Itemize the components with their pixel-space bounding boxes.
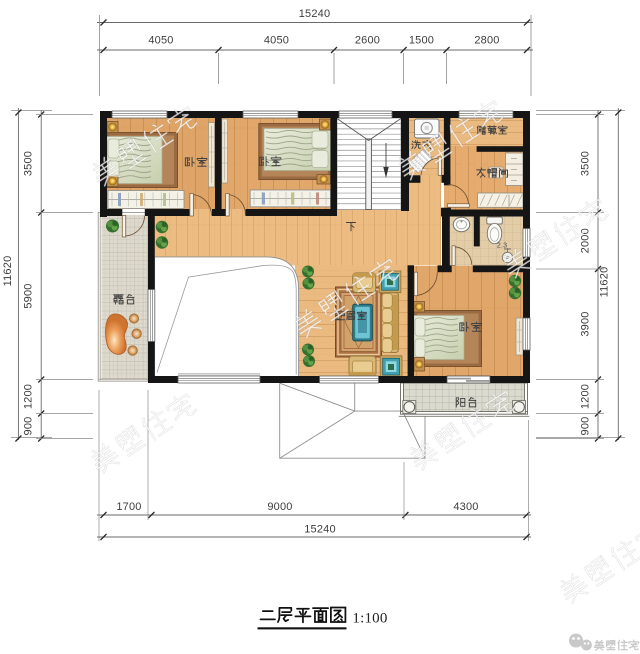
svg-text:3500: 3500	[23, 151, 35, 176]
svg-text:900: 900	[580, 417, 592, 436]
svg-text:2.3: 2.3	[497, 243, 507, 250]
svg-text:5900: 5900	[23, 283, 35, 308]
svg-text:2600: 2600	[355, 35, 380, 47]
svg-text:4300: 4300	[453, 501, 478, 513]
svg-text:3500: 3500	[580, 151, 592, 176]
svg-text:1:100: 1:100	[352, 611, 387, 627]
svg-text:1200: 1200	[23, 384, 35, 409]
svg-text:9000: 9000	[267, 501, 292, 513]
svg-text:1200: 1200	[580, 384, 592, 409]
svg-text:15240: 15240	[299, 8, 331, 20]
svg-text:1500: 1500	[409, 35, 434, 47]
svg-text:3900: 3900	[580, 311, 592, 336]
svg-text:1700: 1700	[116, 501, 141, 513]
svg-text:4050: 4050	[264, 35, 289, 47]
svg-text:15240: 15240	[304, 524, 336, 536]
svg-text:2800: 2800	[474, 35, 499, 47]
svg-text:2000: 2000	[580, 228, 592, 253]
svg-text:11620: 11620	[2, 256, 14, 287]
svg-text:900: 900	[23, 417, 35, 436]
svg-text:4050: 4050	[148, 35, 173, 47]
svg-text:11620: 11620	[599, 267, 611, 298]
